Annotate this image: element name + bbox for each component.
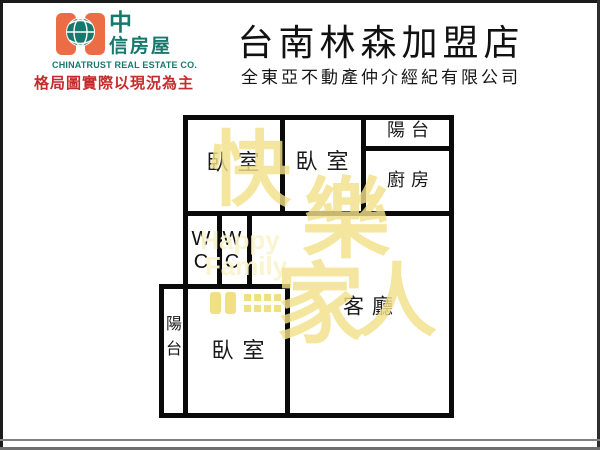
watermark-happy-text: Happy xyxy=(200,227,279,253)
wall-balcony-kitchen xyxy=(361,146,454,151)
watermark-char-jia: 家 xyxy=(276,260,364,348)
frame-bottom-rule xyxy=(0,439,600,441)
logo-char-top: 中 xyxy=(109,11,172,34)
wall-wc-bottom xyxy=(159,284,290,289)
disclaimer-text: 格局圖實際以現況為主 xyxy=(34,72,194,93)
room-label-balcony-bottom: 陽台 xyxy=(164,315,180,365)
company-en-label: CHINATRUST REAL ESTATE CO. xyxy=(52,60,192,70)
room-label-balcony-top: 陽台 xyxy=(381,122,435,140)
frame-top xyxy=(0,0,600,3)
chinatrust-logo-icon xyxy=(54,9,108,61)
wall-outer-left xyxy=(183,115,188,418)
wall-outer-right xyxy=(449,115,454,418)
watermark-family-text: Family xyxy=(205,253,287,279)
logo-wordmark: 中 信房屋 xyxy=(109,11,172,56)
wall-outer-bottom xyxy=(159,413,454,418)
watermark-char-ren: 人 xyxy=(357,261,437,341)
watermark-char-le: 樂 xyxy=(302,175,390,263)
frame-left xyxy=(0,0,3,450)
floorplan-page: 中 信房屋 CHINATRUST REAL ESTATE CO. 格局圖實際以現… xyxy=(0,0,600,450)
store-title: 台南林森加盟店 xyxy=(237,14,524,66)
logo-chars-bottom: 信房屋 xyxy=(109,37,172,56)
watermark-char-kuai: 快 xyxy=(209,129,291,211)
room-label-bedroom3: 臥室 xyxy=(202,341,273,363)
agency-subtitle: 全東亞不動產仲介經紀有限公司 xyxy=(241,63,521,88)
